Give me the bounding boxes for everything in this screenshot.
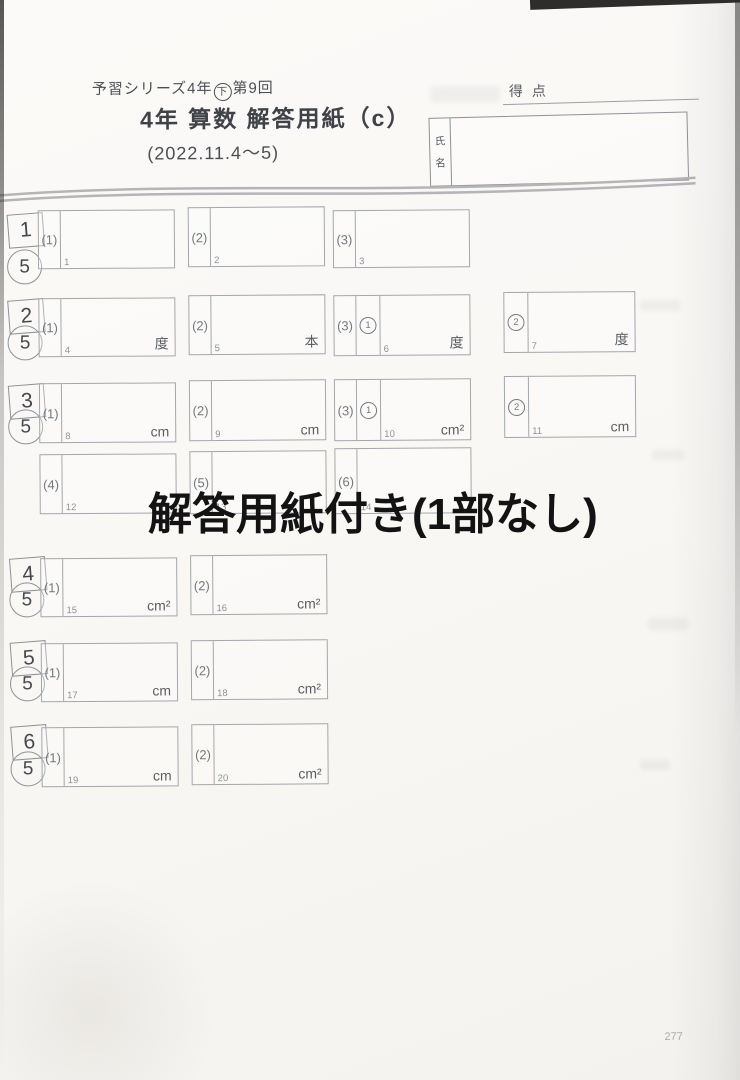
- date-line: (2022.11.4～5): [147, 139, 279, 166]
- answer-box: 2 7度: [503, 291, 635, 353]
- answer-area: 7度: [528, 292, 634, 352]
- answer-box-label: (1): [42, 644, 64, 701]
- answer-box: (2) 2: [188, 206, 325, 267]
- answer-area: 6度: [380, 295, 469, 355]
- answer-box: (2) 18cm²: [191, 639, 328, 700]
- answer-box: (3) 1 6度: [333, 294, 470, 356]
- answer-index: 11: [532, 426, 542, 437]
- circled-shimo-mark: 下: [213, 82, 231, 100]
- series-prefix: 予習シリーズ4年: [92, 80, 213, 98]
- series-suffix: 第9回: [232, 80, 273, 97]
- answer-box: (3) 1 10cm²: [334, 378, 471, 441]
- answer-box: (1) 8cm: [39, 382, 176, 443]
- answer-area: 11cm: [529, 376, 635, 437]
- answer-unit: 度: [450, 332, 464, 352]
- answer-index: 6: [384, 344, 389, 355]
- answer-box: (1) 17cm: [41, 642, 178, 702]
- answer-box: (1) 15cm²: [40, 557, 177, 617]
- page-title: 4年 算数 解答用紙（c）: [140, 99, 412, 135]
- answer-box: (2) 20cm²: [191, 723, 328, 785]
- answer-unit: 度: [615, 329, 629, 349]
- answer-unit: 本: [305, 331, 319, 351]
- bleed-artifact: [640, 760, 670, 770]
- answer-box: 2 11cm: [504, 375, 636, 438]
- section-points-6: 5: [10, 751, 45, 786]
- series-title: 予習シリーズ4年下第9回: [92, 77, 274, 102]
- answer-box: (1) 4度: [38, 297, 175, 357]
- answer-unit: cm: [152, 682, 171, 698]
- answer-index: 5: [215, 343, 220, 354]
- answer-unit: cm²: [297, 595, 320, 611]
- answer-index: 16: [216, 603, 227, 614]
- answer-box-label: (2): [191, 556, 213, 614]
- answer-area: 10cm²: [381, 379, 470, 440]
- answer-area: 18cm²: [214, 640, 327, 699]
- divider-double-line: [0, 174, 702, 207]
- section-points-1: 5: [7, 249, 42, 284]
- answer-unit: cm: [300, 421, 319, 437]
- name-label-bottom: 名: [435, 155, 446, 170]
- section-points-2: 5: [7, 325, 42, 360]
- answer-unit: cm²: [147, 597, 170, 613]
- answer-box: (1) 19cm: [41, 726, 178, 787]
- answer-area: 8cm: [62, 383, 175, 442]
- answer-index: 12: [66, 502, 77, 513]
- answer-area: 4度: [61, 298, 174, 356]
- circled-number-2: 2: [508, 398, 525, 415]
- answer-box-sublabel: 1: [356, 296, 380, 355]
- answer-box-label: (1): [41, 559, 63, 616]
- answer-unit: cm²: [298, 765, 321, 781]
- answer-area: 5本: [211, 295, 324, 354]
- answer-unit: cm: [151, 423, 170, 439]
- answer-box: (2) 16cm²: [190, 554, 327, 615]
- answer-box-label: (4): [40, 455, 62, 513]
- answer-box-sublabel: 2: [504, 293, 528, 352]
- answer-box-label: (3): [334, 211, 356, 267]
- name-label-top: 氏: [435, 133, 446, 148]
- answer-box-label: (1): [39, 299, 61, 356]
- answer-index: 15: [66, 605, 77, 616]
- answer-index: 4: [65, 345, 70, 356]
- overlay-caption: 解答用紙付き(1部なし): [148, 478, 598, 542]
- answer-unit: 度: [155, 333, 169, 353]
- page-curvature-shadow: [670, 0, 740, 1080]
- answer-index: 20: [218, 773, 229, 784]
- score-label: 得点: [509, 81, 555, 101]
- answer-index: 2: [214, 255, 219, 266]
- answer-area: 16cm²: [213, 555, 326, 614]
- answer-box: (3) 3: [333, 209, 470, 268]
- answer-area: 1: [61, 210, 174, 268]
- answer-index: 18: [217, 688, 228, 699]
- answer-box: (1) 1: [38, 209, 175, 269]
- answer-unit: cm²: [441, 421, 464, 437]
- answer-index: 3: [359, 256, 364, 267]
- section-points-5: 5: [10, 666, 45, 701]
- answer-box-label: (1): [39, 211, 61, 268]
- answer-box-label: (2): [192, 725, 214, 784]
- circled-number-1: 1: [360, 401, 377, 418]
- answer-box-label: (3): [335, 380, 357, 440]
- photo-left-edge: [0, 0, 4, 1080]
- answer-box: (2) 9cm: [189, 379, 326, 441]
- answer-box-label: (3): [334, 296, 356, 355]
- answer-unit: cm²: [298, 680, 321, 696]
- answer-unit: cm: [610, 418, 629, 434]
- section-points-4: 5: [9, 582, 44, 617]
- answer-box-sublabel: 2: [505, 377, 529, 437]
- answer-area: 20cm²: [214, 724, 327, 784]
- photographed-answer-sheet: 予習シリーズ4年下第9回 4年 算数 解答用紙（c） (2022.11.4～5)…: [0, 0, 740, 1080]
- book-page-edge: [735, 0, 740, 734]
- answer-index: 1: [64, 257, 69, 268]
- answer-box: (2) 5本: [188, 294, 325, 355]
- circled-number-2: 2: [507, 314, 524, 331]
- answer-box-label: (1): [42, 728, 64, 786]
- answer-index: 10: [384, 429, 395, 440]
- answer-box-label: (2): [192, 641, 214, 699]
- answer-index: 9: [215, 429, 220, 440]
- section-points-3: 5: [8, 409, 43, 444]
- answer-area: 19cm: [64, 727, 177, 786]
- answer-box-sublabel: 1: [357, 380, 381, 440]
- answer-area: 3: [356, 210, 469, 267]
- answer-index: 17: [67, 690, 78, 701]
- answer-index: 7: [532, 341, 537, 352]
- circled-number-1: 1: [359, 317, 376, 334]
- answer-box-label: (2): [189, 208, 211, 266]
- answer-box-label: (2): [189, 296, 211, 354]
- answer-index: 19: [68, 775, 79, 786]
- answer-area: 15cm²: [63, 558, 176, 616]
- bleed-artifact: [430, 86, 500, 102]
- answer-box-label: (1): [40, 384, 62, 442]
- answer-index: 8: [65, 431, 70, 442]
- answer-box-label: (2): [190, 381, 212, 440]
- answer-unit: cm: [153, 767, 172, 783]
- answer-area: 17cm: [64, 643, 177, 701]
- answer-area: 2: [211, 207, 324, 266]
- answer-area: 9cm: [212, 380, 325, 440]
